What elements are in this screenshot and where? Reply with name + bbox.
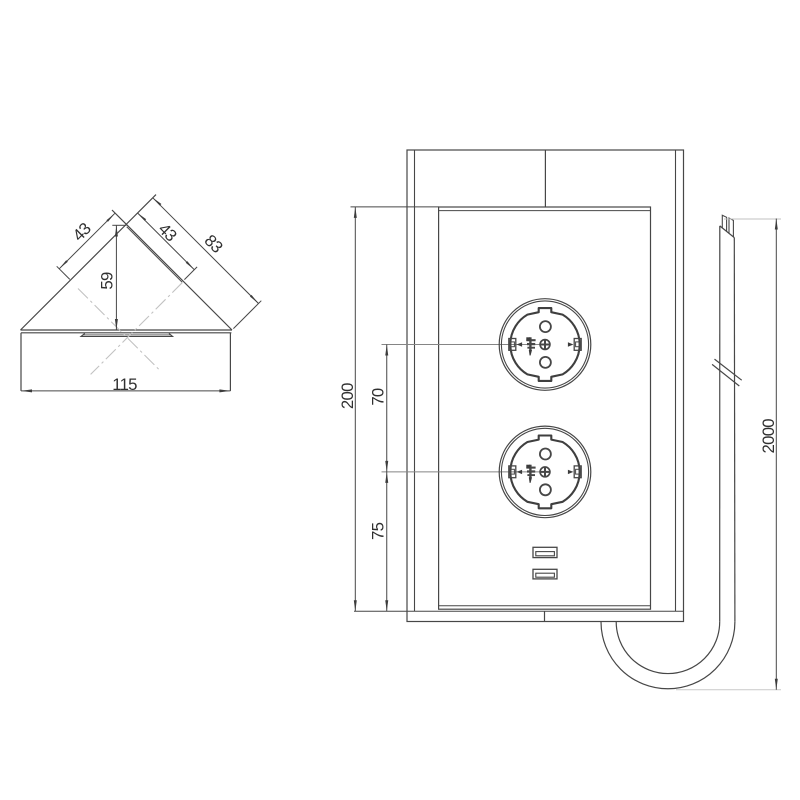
svg-text:200: 200 <box>338 383 357 409</box>
svg-text:43: 43 <box>155 219 181 245</box>
svg-text:115: 115 <box>112 375 137 394</box>
svg-text:70: 70 <box>369 388 388 406</box>
svg-text:2000: 2000 <box>759 419 778 454</box>
svg-text:59: 59 <box>97 272 116 290</box>
svg-text:75: 75 <box>369 522 388 540</box>
svg-text:83: 83 <box>201 231 227 257</box>
svg-text:43: 43 <box>69 219 95 245</box>
